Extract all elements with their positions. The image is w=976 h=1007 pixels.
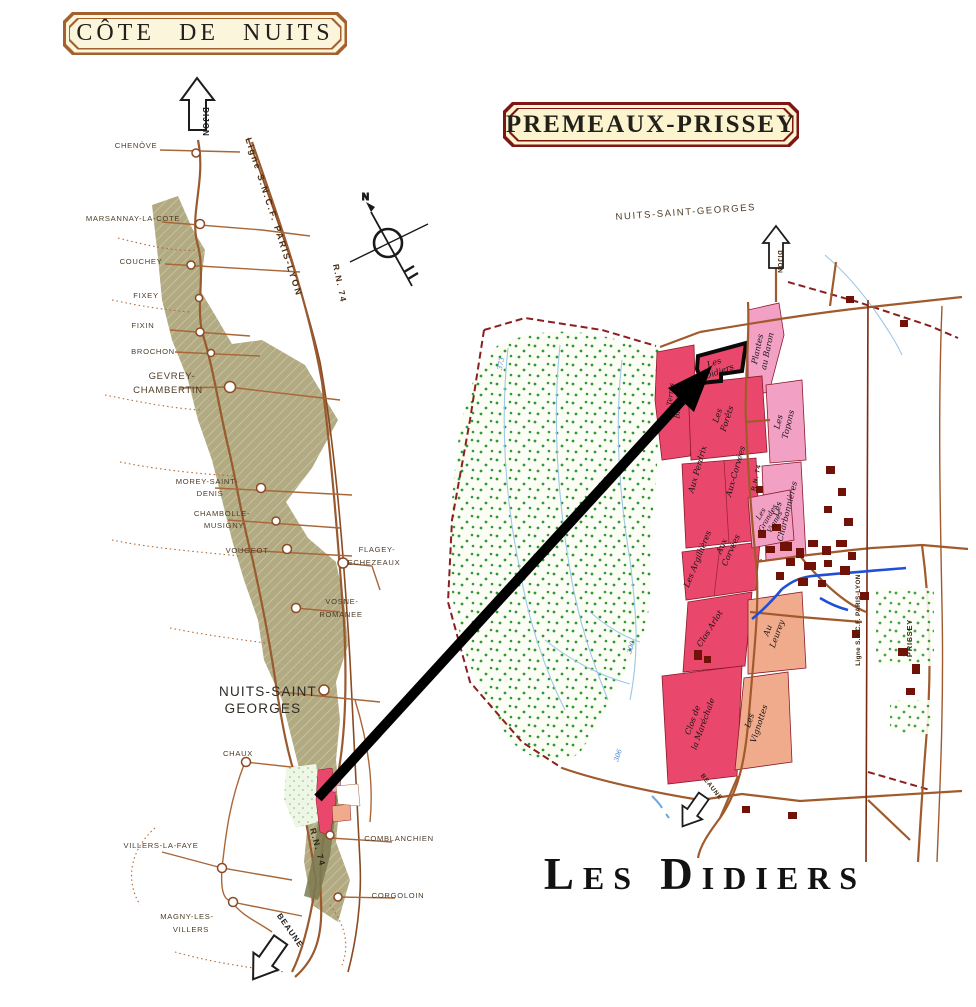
label-chambolle-2: MUSIGNY bbox=[204, 521, 244, 530]
label-left-railway: Ligne S.N.C.F. PARIS-LYON bbox=[243, 136, 304, 297]
label-vosne-1: VOSNE- bbox=[325, 597, 358, 606]
label-marsannay: MARSANNAY-LA-COTE bbox=[86, 214, 180, 223]
label-nsg-2: GEORGES bbox=[225, 701, 302, 716]
label-dijon-left: DIJON bbox=[201, 107, 210, 136]
premeaux-prissey-map: 373 300 306 bbox=[448, 202, 968, 862]
label-brochon: BROCHON bbox=[131, 347, 175, 356]
spring-dots bbox=[652, 796, 669, 818]
east-woods-2 bbox=[890, 700, 932, 734]
right-far-road bbox=[937, 306, 943, 862]
label-corgoloin: CORGOLOIN bbox=[372, 891, 425, 900]
dijon-arrow-right: DIJON bbox=[763, 226, 789, 274]
page: CÔTE DE NUITS PREMEAUX-PRISSEY bbox=[0, 0, 976, 1007]
plot-clos-arlot bbox=[683, 592, 752, 672]
label-vougeot: VOUGEOT bbox=[226, 546, 269, 555]
label-flagey-2: ECHEZEAUX bbox=[348, 558, 401, 567]
label-comblanchien: COMBLANCHIEN bbox=[364, 834, 434, 843]
label-chenove: CHENÔVE bbox=[115, 141, 157, 150]
label-fixin: FIXIN bbox=[132, 321, 155, 330]
label-nsg-1: NUITS-SAINT bbox=[219, 684, 317, 699]
label-gevrey-1: GEVREY- bbox=[149, 371, 196, 382]
contour-306: 306 bbox=[612, 747, 624, 762]
caption-les-didiers: Les Didiers bbox=[535, 848, 875, 900]
label-nsg-top: NUITS-SAINT-GEORGES bbox=[615, 202, 756, 223]
label-morey-1: MOREY-SAINT- bbox=[176, 477, 239, 486]
label-right-railway: Ligne S.N.C.F. PARIS-LYON bbox=[855, 574, 862, 666]
label-dijon-right: DIJON bbox=[776, 250, 783, 273]
compass-rose: N bbox=[350, 192, 428, 286]
dijon-arrow-left: DIJON bbox=[181, 78, 214, 137]
label-rn74-top: R.N. 74 bbox=[331, 263, 349, 304]
label-magny-1: MAGNY-LES- bbox=[160, 912, 214, 921]
cote-de-nuits-strip-map: CHENÔVE MARSANNAY-LA-COTE COUCHEY FIXEY … bbox=[86, 78, 434, 988]
label-chaux: CHAUX bbox=[223, 749, 253, 758]
label-morey-2: DENIS bbox=[197, 489, 224, 498]
right-railway bbox=[866, 300, 868, 862]
label-villers-la-faye: VILLERS-LA-FAYE bbox=[124, 841, 199, 850]
compass-n-label: N bbox=[362, 192, 370, 203]
label-fixey: FIXEY bbox=[133, 291, 158, 300]
label-gevrey-2: CHAMBERTIN bbox=[133, 385, 203, 396]
label-chambolle-1: CHAMBOLLE- bbox=[194, 509, 250, 518]
label-vosne-2: ROMANEE bbox=[319, 610, 362, 619]
label-couchey: COUCHEY bbox=[120, 257, 163, 266]
label-magny-2: VILLERS bbox=[173, 925, 209, 934]
label-prissey: PRISSEY bbox=[905, 619, 914, 657]
label-flagey-1: FLAGEY- bbox=[359, 545, 396, 554]
